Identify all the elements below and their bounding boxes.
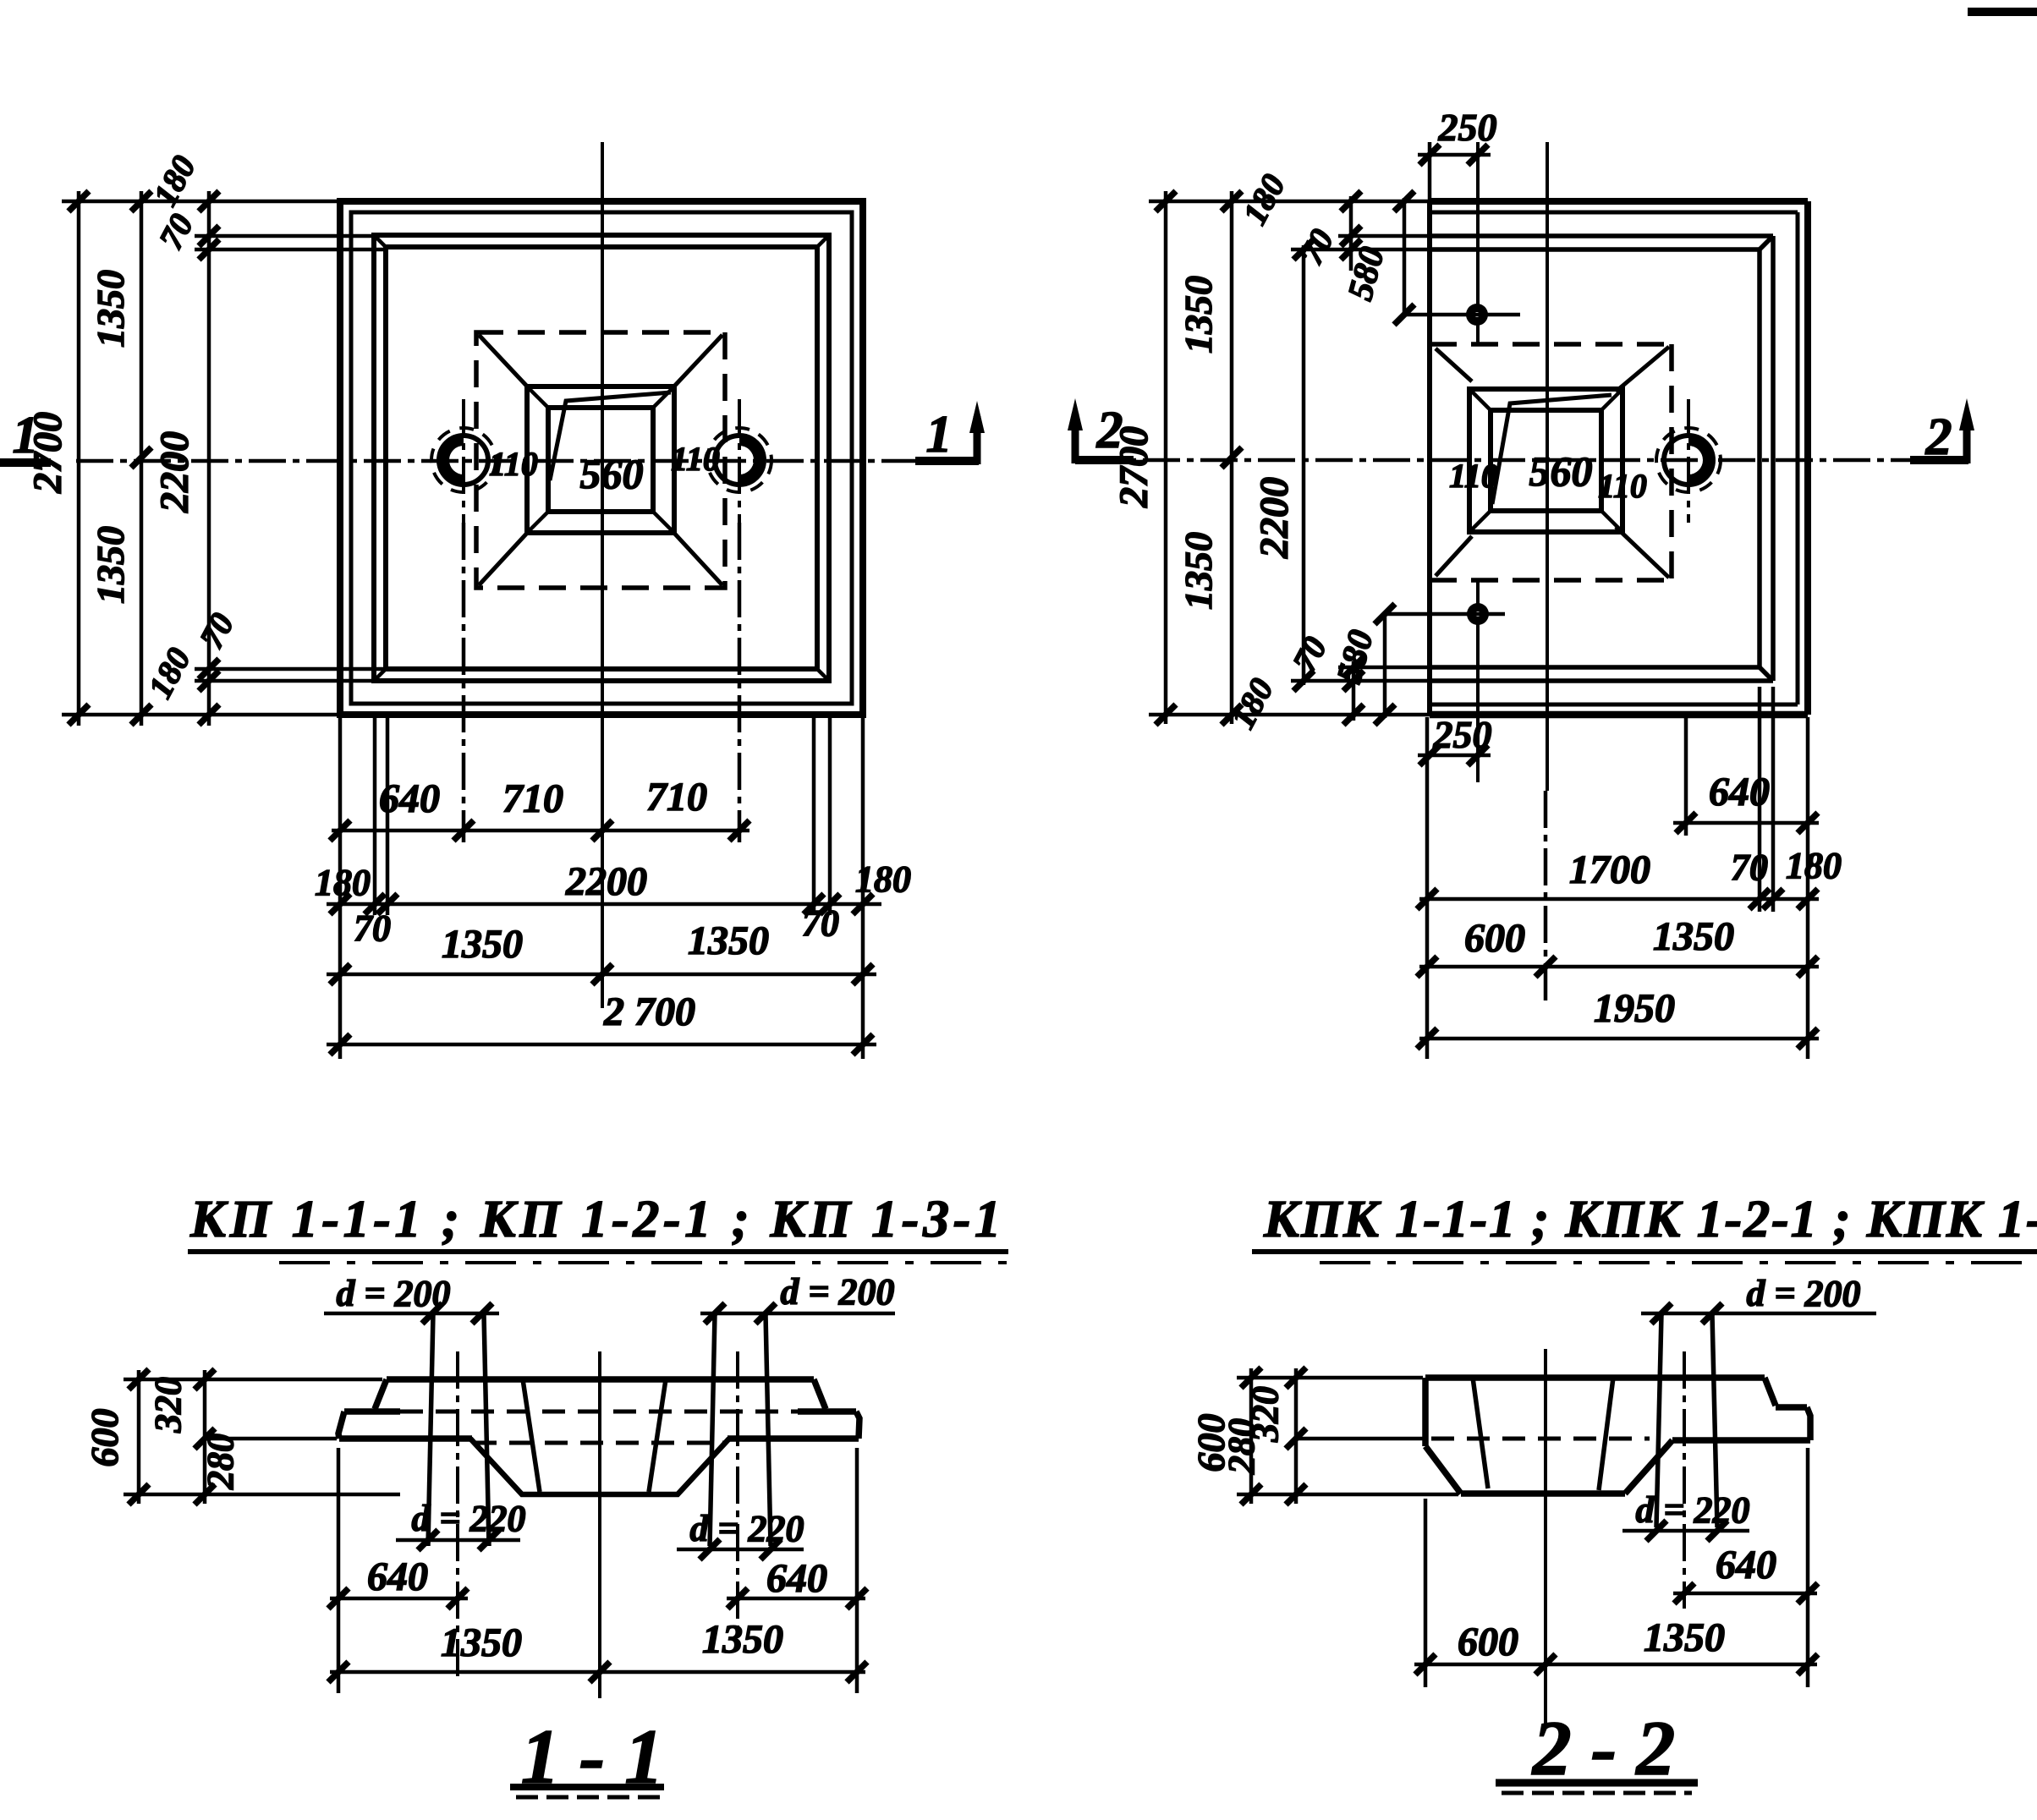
svg-text:d = 220: d = 220 — [411, 1498, 525, 1539]
svg-text:560: 560 — [1529, 447, 1593, 495]
svg-text:180: 180 — [1786, 845, 1842, 886]
svg-text:250: 250 — [1433, 713, 1492, 756]
svg-text:710: 710 — [646, 775, 707, 820]
svg-text:600: 600 — [83, 1409, 126, 1467]
svg-text:70: 70 — [354, 907, 391, 949]
svg-text:1950: 1950 — [1594, 986, 1675, 1031]
svg-text:2700: 2700 — [25, 412, 70, 494]
svg-text:КП 1-1-1 ; КП 1-2-1 ; КП 1-3-1: КП 1-1-1 ; КП 1-2-1 ; КП 1-3-1 — [189, 1191, 1001, 1248]
svg-text:1350: 1350 — [702, 1617, 783, 1662]
svg-text:1350: 1350 — [89, 270, 132, 348]
svg-text:d = 200: d = 200 — [780, 1271, 894, 1313]
svg-text:640: 640 — [367, 1554, 428, 1599]
svg-text:600: 600 — [1458, 1620, 1518, 1664]
svg-text:1350: 1350 — [1653, 914, 1734, 959]
svg-text:180: 180 — [315, 862, 371, 903]
svg-text:2200: 2200 — [565, 859, 647, 904]
svg-text:1350: 1350 — [1644, 1615, 1725, 1660]
svg-text:1350: 1350 — [688, 918, 769, 963]
svg-text:1350: 1350 — [441, 1620, 522, 1665]
svg-text:280: 280 — [200, 1434, 241, 1490]
svg-text:2700: 2700 — [1112, 426, 1156, 508]
svg-text:640: 640 — [766, 1556, 827, 1601]
svg-text:d = 200: d = 200 — [336, 1273, 450, 1314]
svg-text:180: 180 — [855, 858, 911, 900]
svg-text:110: 110 — [1598, 467, 1647, 505]
svg-text:70: 70 — [1731, 847, 1768, 888]
svg-text:d = 220: d = 220 — [1635, 1489, 1749, 1531]
svg-text:1700: 1700 — [1569, 847, 1650, 892]
svg-text:2: 2 — [1925, 408, 1952, 466]
svg-text:110: 110 — [1449, 457, 1498, 495]
svg-text:2 - 2: 2 - 2 — [1531, 1705, 1676, 1791]
svg-text:1350: 1350 — [1177, 276, 1220, 354]
svg-text:d = 200: d = 200 — [1746, 1273, 1860, 1314]
svg-text:640: 640 — [379, 776, 440, 821]
svg-text:1350: 1350 — [1177, 532, 1220, 610]
svg-text:2 700: 2 700 — [603, 989, 695, 1034]
svg-text:710: 710 — [502, 776, 563, 821]
svg-text:1350: 1350 — [442, 922, 523, 967]
svg-text:2200: 2200 — [152, 431, 197, 513]
svg-text:280: 280 — [1221, 1418, 1262, 1475]
svg-text:2200: 2200 — [1252, 477, 1297, 559]
svg-text:320: 320 — [147, 1377, 189, 1434]
svg-text:640: 640 — [1716, 1543, 1776, 1587]
svg-text:1: 1 — [926, 406, 953, 463]
svg-text:d = 220: d = 220 — [689, 1508, 804, 1549]
svg-text:640: 640 — [1709, 770, 1770, 814]
svg-text:70: 70 — [802, 902, 839, 944]
svg-text:560: 560 — [580, 450, 644, 497]
svg-text:600: 600 — [1464, 916, 1525, 961]
svg-text:250: 250 — [1438, 106, 1497, 149]
svg-text:1350: 1350 — [89, 526, 132, 604]
